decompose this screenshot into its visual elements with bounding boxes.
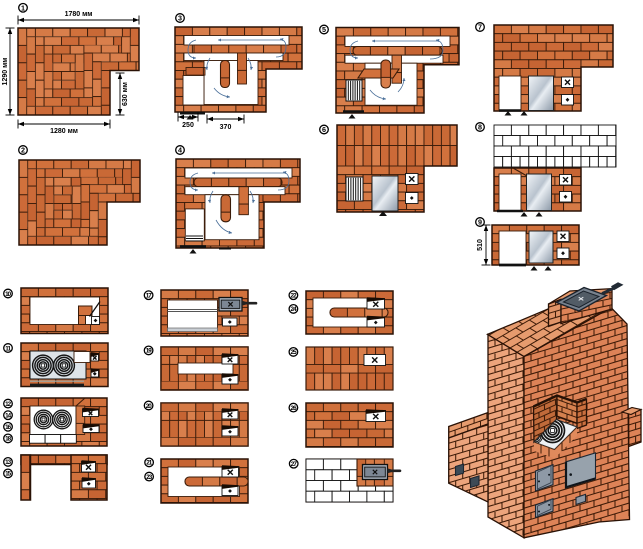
svg-text:1: 1 [21, 3, 25, 12]
svg-text:1290 мм: 1290 мм [2, 58, 9, 86]
svg-text:8: 8 [478, 123, 482, 132]
svg-text:3: 3 [178, 14, 182, 23]
svg-text:5: 5 [322, 25, 326, 34]
svg-text:1280 мм: 1280 мм [50, 128, 78, 135]
svg-text:2: 2 [21, 146, 25, 155]
svg-text:4: 4 [178, 146, 182, 155]
svg-text:510: 510 [477, 239, 484, 251]
svg-text:1780 мм: 1780 мм [65, 11, 93, 18]
svg-text:370: 370 [220, 124, 232, 131]
svg-text:9: 9 [478, 218, 482, 227]
svg-text:6: 6 [322, 125, 326, 134]
svg-text:7: 7 [478, 23, 482, 32]
svg-text:630 мм: 630 мм [122, 82, 129, 106]
svg-text:250: 250 [182, 122, 194, 129]
